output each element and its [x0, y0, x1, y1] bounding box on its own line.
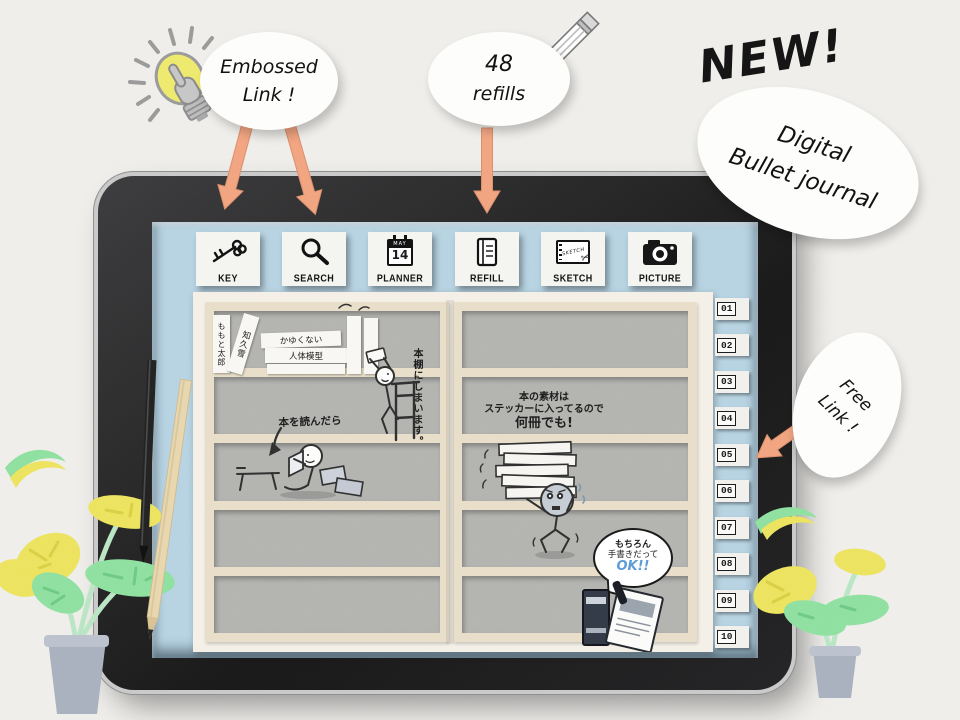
book-spine-blank[interactable] — [267, 364, 345, 374]
bubble-embossed-link: Embossed Link ! — [200, 32, 338, 130]
index-tab-label: 02 — [717, 338, 736, 353]
toolbar-button-search[interactable]: SEARCH — [282, 232, 346, 286]
toolbar-button-sketch[interactable]: SKETCH ✂ SKETCH — [541, 232, 605, 286]
index-tab-05[interactable]: 05 — [715, 444, 749, 466]
caption-shelve: 本棚にしまいます。 — [409, 348, 424, 448]
bookshelf-page-right — [453, 302, 697, 642]
index-tab-label: 08 — [717, 557, 736, 572]
index-tab-label: 05 — [717, 448, 736, 463]
notebook-icon — [455, 235, 519, 269]
promo-poster: KEY SEARCH MAY 14 PLANNE — [0, 0, 960, 720]
calendar-day: 14 — [389, 248, 411, 262]
shelf-cell — [462, 311, 688, 368]
bubble-text: refills — [473, 81, 525, 108]
shelf-cell — [462, 576, 688, 633]
index-tab-label: 09 — [717, 593, 736, 608]
book-spine-blank[interactable] — [364, 318, 378, 374]
scissors-icon: ✂ — [579, 250, 592, 265]
camera-icon — [628, 235, 692, 269]
calendar-month: MAY — [389, 241, 411, 248]
book-spine[interactable]: 人体模型 — [265, 348, 347, 363]
index-tab-01[interactable]: 01 — [715, 298, 749, 320]
index-tab-label: 10 — [717, 630, 736, 645]
bubble-text: Link ! — [243, 81, 296, 110]
toolbar-button-picture[interactable]: PICTURE — [628, 232, 692, 286]
book-spine-blank[interactable] — [347, 316, 361, 374]
bubble-text: Embossed — [220, 53, 318, 82]
index-tab-02[interactable]: 02 — [715, 334, 749, 356]
shelf-cell — [214, 576, 440, 633]
search-icon — [282, 235, 346, 269]
click-hand-icon — [163, 59, 203, 107]
toolbar-button-label: KEY — [218, 272, 238, 284]
speech-bubble: もちろん 手書きだって OK!! — [593, 528, 673, 588]
tablet-screen: KEY SEARCH MAY 14 PLANNE — [152, 222, 758, 658]
shelf-cell — [214, 443, 440, 500]
sketchbook-icon: SKETCH ✂ — [541, 235, 605, 269]
toolbar-button-refill[interactable]: REFILL — [455, 232, 519, 286]
index-tab-label: 07 — [717, 520, 736, 535]
toolbar-button-key[interactable]: KEY — [196, 232, 260, 286]
key-icon — [196, 235, 260, 269]
bubble-48-refills: 48 refills — [428, 32, 570, 126]
caption-materials-1: 本の素材は — [465, 392, 623, 404]
index-tab-03[interactable]: 03 — [715, 371, 749, 393]
new-label: NEW! — [695, 11, 891, 93]
index-tab-08[interactable]: 08 — [715, 553, 749, 575]
toolbar-button-label: PLANNER — [377, 272, 423, 284]
index-tab-label: 01 — [717, 302, 736, 317]
toolbar-button-planner[interactable]: MAY 14 PLANNER — [368, 232, 432, 286]
index-tab-06[interactable]: 06 — [715, 480, 749, 502]
index-tab-07[interactable]: 07 — [715, 517, 749, 539]
toolbar-button-label: REFILL — [470, 272, 504, 284]
bubble-free-link: Free Link ! — [773, 317, 920, 493]
page-divider — [446, 300, 454, 644]
caption-materials-2: ステッカーに入ってるので — [465, 404, 623, 416]
caption-materials-3: 何冊でも! — [465, 416, 623, 432]
shelf-cell — [462, 443, 688, 500]
toolbar-button-label: SEARCH — [294, 272, 334, 284]
toolbar-button-label: PICTURE — [639, 272, 681, 284]
bubble-text: 48 — [485, 50, 513, 81]
shelf-cell — [214, 510, 440, 567]
index-tab-09[interactable]: 09 — [715, 590, 749, 612]
index-tab-10[interactable]: 10 — [715, 626, 749, 648]
index-tab-04[interactable]: 04 — [715, 407, 749, 429]
bookshelf-panel: ももと太郎 知久雪 かゆくない 人体模型 本棚にしまいます。 本を読んだら 本の… — [193, 292, 713, 652]
book-spine[interactable]: かゆくない — [261, 331, 341, 349]
index-tab-strip: 01 02 03 04 05 06 07 08 09 10 — [715, 298, 751, 648]
tablet-frame: KEY SEARCH MAY 14 PLANNE — [98, 176, 792, 690]
toolbar-button-label: SKETCH — [553, 272, 592, 284]
index-tab-label: 04 — [717, 411, 736, 426]
index-tab-label: 06 — [717, 484, 736, 499]
index-tab-label: 03 — [717, 375, 736, 390]
calendar-icon: MAY 14 — [368, 235, 432, 269]
speech-line-3: OK!! — [617, 560, 650, 574]
